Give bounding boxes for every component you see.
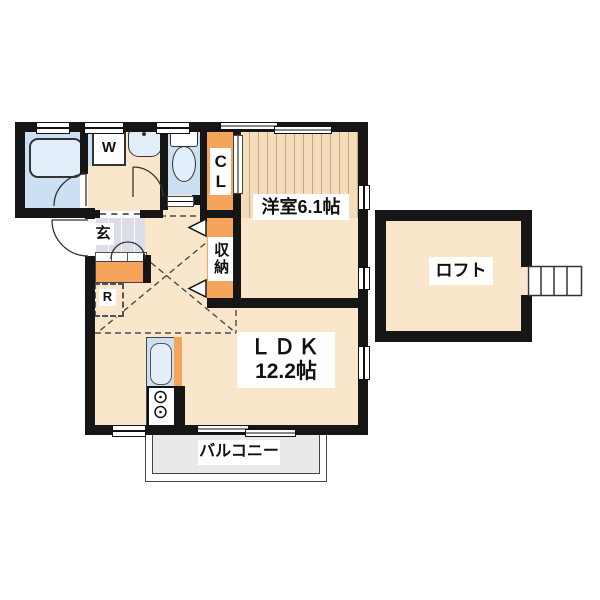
wall-bathroom-bottom [15, 208, 95, 218]
wash-basin-faucet-dot [142, 132, 146, 136]
window-ldk-right [358, 346, 370, 380]
window-western-right-upper [358, 185, 370, 210]
ldk-size-text: 12.2帖 [255, 360, 317, 384]
window-ldk-bottom-sash-left [197, 425, 249, 433]
window-washroom-top [84, 122, 124, 134]
window-bathroom-top [36, 122, 70, 134]
wall-genkan-stub [143, 255, 151, 283]
loft-label-text: ロフト [436, 261, 487, 281]
closet-door [233, 135, 243, 194]
closet-label-text: CL [211, 152, 231, 192]
toilet-bowl [172, 146, 196, 182]
ldk-name-text: ＬＤＫ [250, 336, 322, 360]
storage-label-text: 収納 [212, 242, 229, 276]
ldk-label: ＬＤＫ 12.2帖 [237, 332, 335, 388]
western-room-label-text: 洋室6.1帖 [261, 197, 340, 218]
window-toilet-top [156, 122, 190, 134]
fridge-label-text: R [103, 290, 112, 305]
wall-left-lower-b [85, 255, 95, 435]
fridge-label: R [99, 289, 116, 306]
washroom-sliding-door [100, 211, 140, 218]
window-western-right-lower [358, 267, 370, 290]
kitchen-counter-orange-strip [174, 337, 182, 386]
toilet-door [167, 196, 194, 207]
loft-wall-bottom [375, 331, 532, 342]
loft-wall-left [375, 210, 386, 342]
washroom-sliding-door-dashes [100, 213, 140, 215]
loft-ladder [529, 267, 582, 296]
wall-washroom-bottom-a [85, 210, 100, 218]
window-ldk-bottom-small [112, 425, 146, 437]
window-western-top-sash-left [220, 122, 278, 130]
closet-label: CL [210, 148, 231, 195]
wall-closet-bottom [207, 210, 233, 218]
genkan-upper-step [95, 261, 145, 283]
washer-box: W [92, 130, 126, 166]
kitchen-sink [150, 343, 172, 385]
bathtub [29, 138, 83, 178]
wall-western-bottom [207, 298, 368, 308]
wall-left-upper [15, 122, 25, 218]
washer-label: W [102, 139, 116, 156]
balcony-label: バルコニー [198, 440, 280, 465]
wall-kitchen-stub [174, 386, 185, 427]
floor-plan: W [0, 0, 600, 600]
western-room-label: 洋室6.1帖 [253, 194, 349, 220]
wall-hall-storage-stub [200, 205, 207, 222]
loft-wall-right-upper [521, 210, 532, 267]
window-ldk-bottom-sash-right [245, 429, 296, 437]
loft-wall-right-lower [521, 295, 532, 342]
balcony-label-text: バルコニー [199, 443, 279, 461]
loft-wall-top [375, 210, 532, 221]
wall-toilet-bottom-b [192, 195, 207, 205]
storage-label: 収納 [208, 237, 233, 281]
entrance-label: 玄 [92, 223, 114, 245]
wall-toilet-bottom-a [160, 195, 167, 205]
front-door-arc [52, 220, 88, 256]
entrance-label-text: 玄 [95, 225, 110, 242]
wall-bath-washroom [80, 132, 88, 174]
window-western-top-sash-right [274, 126, 332, 134]
wall-washroom-bottom-b [140, 210, 163, 218]
loft-label: ロフト [429, 257, 493, 285]
wall-closet-western-b [233, 192, 241, 308]
